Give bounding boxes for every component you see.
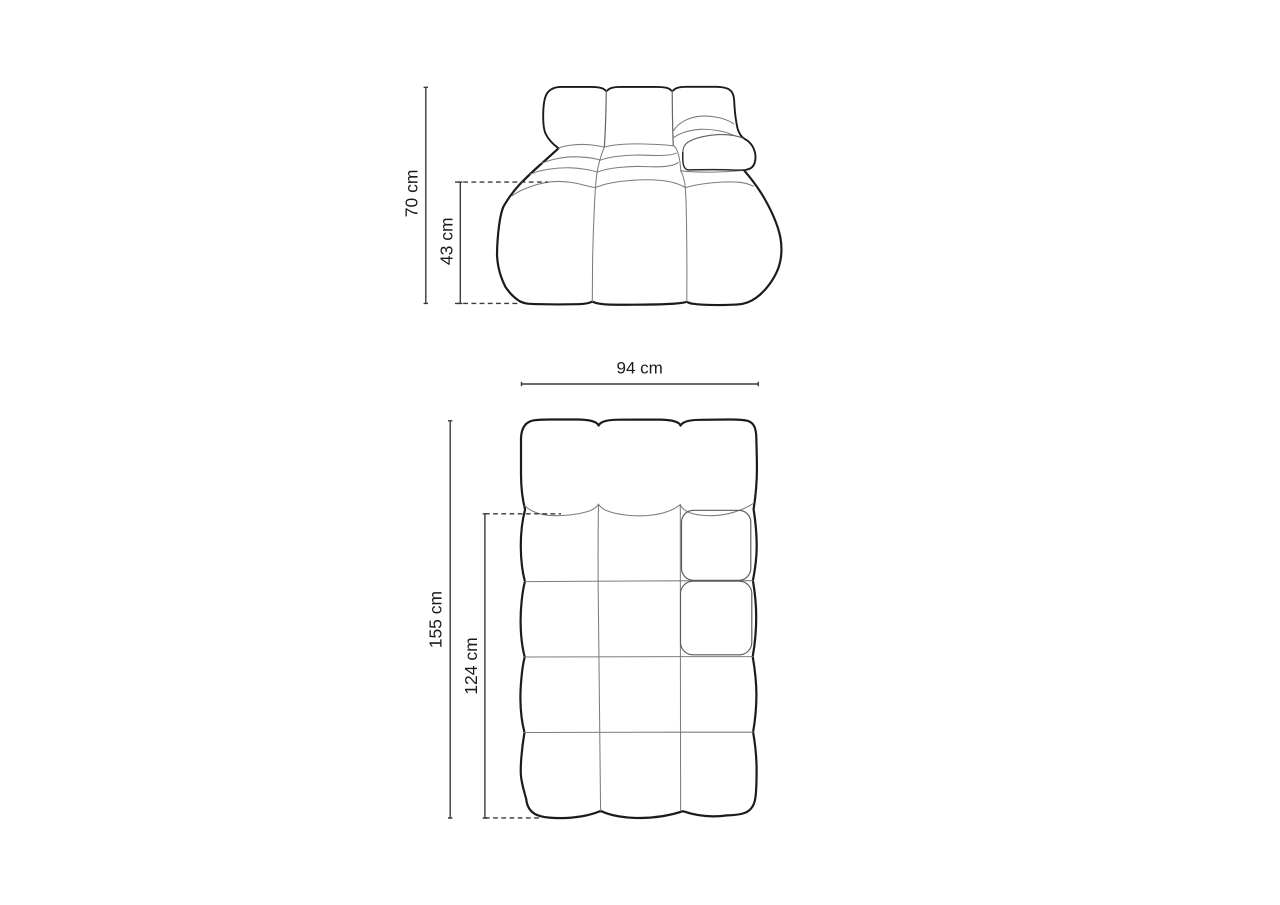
svg-text:124 cm: 124 cm: [461, 637, 481, 694]
svg-text:155 cm: 155 cm: [426, 591, 446, 648]
svg-text:94 cm: 94 cm: [617, 358, 663, 377]
svg-text:43 cm: 43 cm: [436, 217, 456, 265]
svg-text:70 cm: 70 cm: [402, 170, 422, 218]
